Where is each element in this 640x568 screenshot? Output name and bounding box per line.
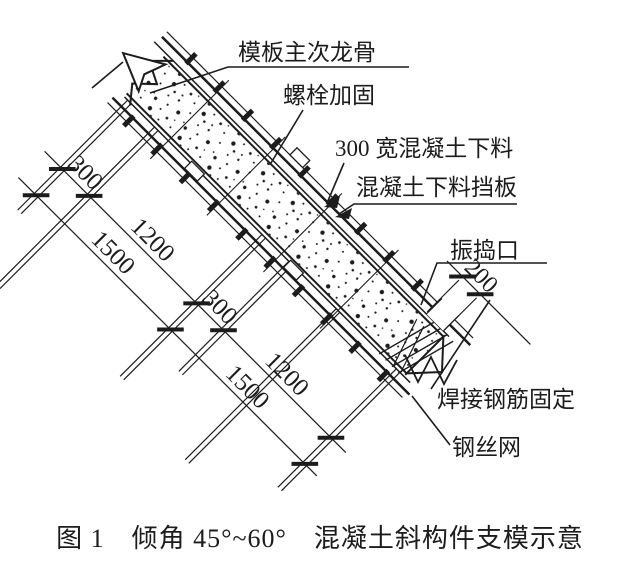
inclined-member-group: 300 1200 1500 300 1500 1200 200 — [0, 0, 549, 568]
technical-diagram: 300 1200 1500 300 1500 1200 200 模板主次龙骨 螺… — [0, 0, 640, 568]
leader-baffle — [339, 204, 517, 214]
label-wire-mesh: 钢丝网 — [452, 435, 521, 460]
label-formwork-keel: 模板主次龙骨 — [238, 40, 376, 65]
dim-bay2-300: 300 — [197, 284, 243, 330]
dim-bay1-300: 300 — [62, 150, 108, 196]
label-weld-rebar-fix: 焊接钢筋固定 — [437, 387, 575, 412]
label-chute-baffle: 混凝土下料挡板 — [356, 175, 517, 200]
figure-page: 300 1200 1500 300 1500 1200 200 模板主次龙骨 螺… — [0, 0, 640, 568]
label-concrete-chute: 300 宽混凝土下料 — [335, 136, 513, 161]
structure-details — [0, 11, 496, 541]
figure-caption: 图 1 倾角 45°~60° 混凝土斜构件支模示意 — [0, 518, 640, 555]
stray-brace-line — [92, 62, 123, 88]
label-bolt-reinforce: 螺栓加固 — [283, 83, 375, 108]
label-vibration-port: 振捣口 — [450, 238, 519, 263]
